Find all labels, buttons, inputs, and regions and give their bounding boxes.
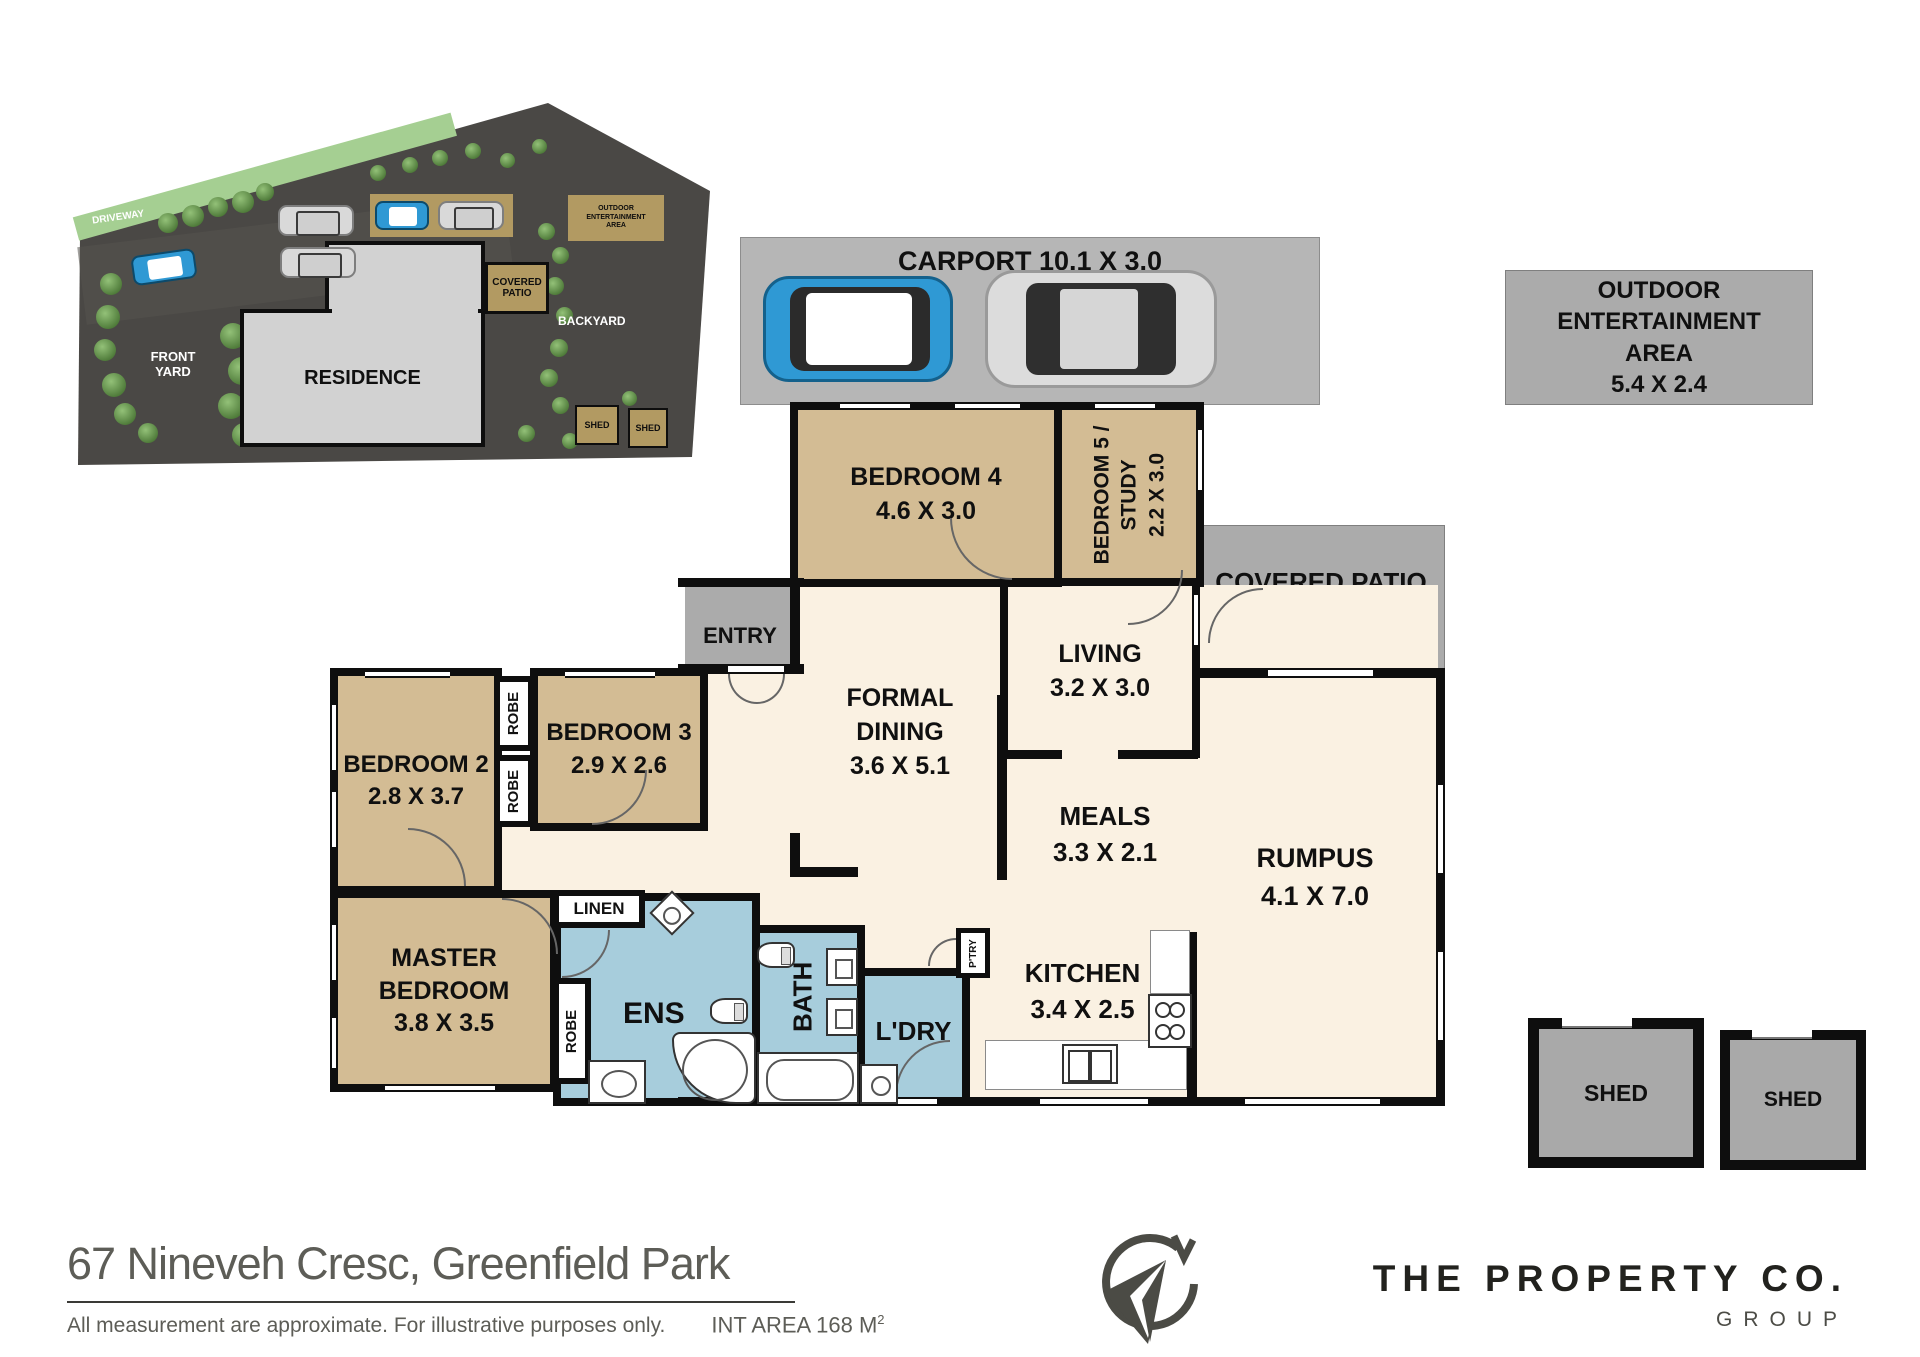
robe-1-label: ROBE	[506, 692, 523, 735]
compass-logo	[1090, 1226, 1210, 1357]
fineprint-row: All measurement are approximate. For ill…	[67, 1312, 885, 1338]
formal-dining-label: FORMAL DINING 3.6 X 5.1	[790, 682, 1010, 783]
window-bed2-left-b	[330, 792, 338, 847]
living-label: LIVING3.2 X 3.0	[1050, 638, 1150, 706]
site-residence-label: RESIDENCE	[304, 366, 421, 390]
window-master-left-a	[330, 925, 338, 980]
kitchen-sink	[1062, 1044, 1118, 1084]
shed-large: SHED	[1528, 1018, 1704, 1168]
site-shed-2: SHED	[628, 408, 668, 448]
tree-icon	[182, 205, 204, 227]
tree-icon	[114, 403, 136, 425]
kitchen-stove	[1148, 994, 1192, 1048]
shed-large-door	[1562, 1018, 1632, 1028]
tree-icon	[500, 153, 515, 168]
site-backyard-label: BACKYARD	[558, 315, 626, 329]
window-rumpus-bottom	[1245, 1097, 1380, 1106]
tree-icon	[538, 223, 555, 240]
brand-name: THE PROPERTY CO.	[1373, 1258, 1848, 1300]
site-car-silver-carport	[438, 201, 504, 230]
shed-small-label: SHED	[1764, 1087, 1822, 1113]
tree-icon	[432, 150, 448, 166]
window-rumpus-right-b	[1436, 952, 1445, 1040]
tree-icon	[370, 165, 386, 181]
site-covered-patio-label: COVERED PATIO	[488, 277, 546, 299]
bath-label: BATH	[787, 962, 819, 1032]
tree-icon	[232, 191, 254, 213]
wall-entry-top	[678, 578, 804, 587]
property-address: 67 Nineveh Cresc, Greenfield Park	[67, 1238, 729, 1290]
linen-label: LINEN	[574, 899, 625, 919]
site-front-yard-label: FRONT YARD	[140, 350, 206, 380]
ensuite-toilet	[710, 998, 748, 1024]
door-laundry-bottom	[893, 1097, 937, 1106]
kitchen-fridge-bench	[1150, 930, 1190, 994]
window-bed5-top	[1095, 402, 1155, 410]
entry-porch: ENTRY	[685, 585, 795, 670]
site-shed-1: SHED	[575, 405, 619, 445]
tree-icon	[552, 247, 569, 264]
site-shed-2-label: SHED	[635, 423, 660, 433]
bedroom2-label: BEDROOM 22.8 X 3.7	[343, 749, 488, 814]
window-bed5-right	[1196, 430, 1204, 490]
bath-toilet	[757, 942, 795, 968]
tree-icon	[100, 273, 122, 295]
brand-block: THE PROPERTY CO. GROUP	[1373, 1258, 1848, 1332]
tree-icon	[550, 339, 568, 357]
bedroom5-label: BEDROOM 5 / STUDY 2.2 X 3.0	[1088, 425, 1170, 564]
wall-dining-meals	[997, 695, 1007, 880]
outdoor-entertainment-label: OUTDOOR ENTERTAINMENT AREA 5.4 X 2.4	[1557, 275, 1761, 400]
wall-exterior-right	[1436, 668, 1445, 1106]
wall-living-meals-b	[1118, 750, 1198, 759]
wall-hall-stub-h	[790, 867, 858, 877]
tree-icon	[518, 425, 535, 442]
tree-icon	[208, 197, 228, 217]
wall-living-meals-a	[1002, 750, 1062, 759]
tree-icon	[552, 397, 569, 414]
window-bed2-top	[365, 670, 450, 678]
bath-vanity-a	[826, 948, 858, 986]
window-master-bottom	[385, 1084, 495, 1092]
site-outdoor-area: OUTDOOR ENTERTAINMENT AREA	[568, 195, 664, 241]
room-bedroom4: BEDROOM 44.6 X 3.0	[790, 402, 1062, 587]
site-car-silver-1	[278, 205, 354, 236]
robe-2: ROBE	[494, 755, 534, 827]
master-bedroom-label: MASTER BEDROOM 3.8 X 3.5	[379, 942, 510, 1040]
ensuite-label: ENS	[623, 996, 685, 1033]
site-residence-join	[332, 305, 478, 315]
bathtub	[757, 1052, 859, 1104]
site-outdoor-area-label: OUTDOOR ENTERTAINMENT AREA	[586, 205, 645, 231]
window-bed2-left-a	[330, 705, 338, 770]
robe-master: ROBE	[553, 978, 591, 1084]
site-residence: RESIDENCE	[240, 309, 485, 447]
shed-small: SHED	[1720, 1030, 1866, 1170]
tree-icon	[102, 373, 126, 397]
floorplan-page: RESIDENCE COVERED PATIO OUTDOOR ENTERTAI…	[0, 0, 1920, 1357]
tree-icon	[94, 339, 116, 361]
tree-icon	[622, 391, 637, 406]
entry-label: ENTRY	[685, 623, 795, 650]
tree-icon	[96, 305, 120, 329]
brand-group: GROUP	[1373, 1308, 1848, 1332]
window-living-right	[1192, 595, 1200, 645]
window-bed4-b	[955, 402, 1020, 410]
room-bedroom5-study: BEDROOM 5 / STUDY 2.2 X 3.0	[1054, 402, 1204, 587]
robe-2-label: ROBE	[506, 769, 523, 812]
tree-icon	[402, 157, 418, 173]
site-car-silver-2	[280, 247, 356, 278]
tree-icon	[256, 183, 274, 201]
tree-icon	[532, 139, 547, 154]
outdoor-entertainment-area: OUTDOOR ENTERTAINMENT AREA 5.4 X 2.4	[1505, 270, 1813, 405]
disclaimer-text: All measurement are approximate. For ill…	[67, 1314, 665, 1338]
window-bed3-top	[565, 670, 655, 678]
pantry: P'TRY	[956, 928, 990, 978]
tree-icon	[540, 369, 558, 387]
shed-small-door	[1752, 1030, 1812, 1039]
robe-master-label: ROBE	[564, 1009, 581, 1052]
bath-vanity-b	[826, 998, 858, 1036]
carport-car-silver	[985, 270, 1217, 388]
compass-icon	[1090, 1226, 1210, 1357]
ensuite-vanity	[588, 1060, 646, 1104]
site-plan: RESIDENCE COVERED PATIO OUTDOOR ENTERTAI…	[70, 95, 720, 475]
laundry-tub	[860, 1064, 898, 1104]
tree-icon	[138, 423, 158, 443]
window-bed4-a	[840, 402, 910, 410]
meals-label: MEALS3.3 X 2.1	[1010, 798, 1200, 871]
hall-floor-patch	[494, 825, 694, 897]
address-divider	[67, 1301, 795, 1303]
carport-car-blue	[763, 276, 953, 382]
shed-large-label: SHED	[1584, 1079, 1648, 1107]
wall-bed4-porch	[790, 578, 800, 674]
sliding-door-patio	[1268, 668, 1373, 678]
linen-cupboard: LINEN	[553, 890, 645, 928]
robe-1: ROBE	[494, 676, 534, 751]
tree-icon	[158, 213, 178, 233]
site-shed-1-label: SHED	[584, 420, 609, 430]
rumpus-label: RUMPUS4.1 X 7.0	[1220, 840, 1410, 916]
front-door-opening	[728, 664, 784, 674]
site-car-blue-carport	[375, 201, 429, 230]
window-kitchen-bottom	[1040, 1097, 1148, 1106]
window-master-left-b	[330, 1018, 338, 1068]
kitchen-label: KITCHEN3.4 X 2.5	[995, 955, 1170, 1028]
tree-icon	[465, 143, 481, 159]
pantry-label: P'TRY	[968, 939, 979, 968]
site-covered-patio: COVERED PATIO	[485, 262, 549, 314]
window-rumpus-right-a	[1436, 785, 1445, 873]
internal-area-text: INT AREA 168 M2	[711, 1312, 884, 1338]
